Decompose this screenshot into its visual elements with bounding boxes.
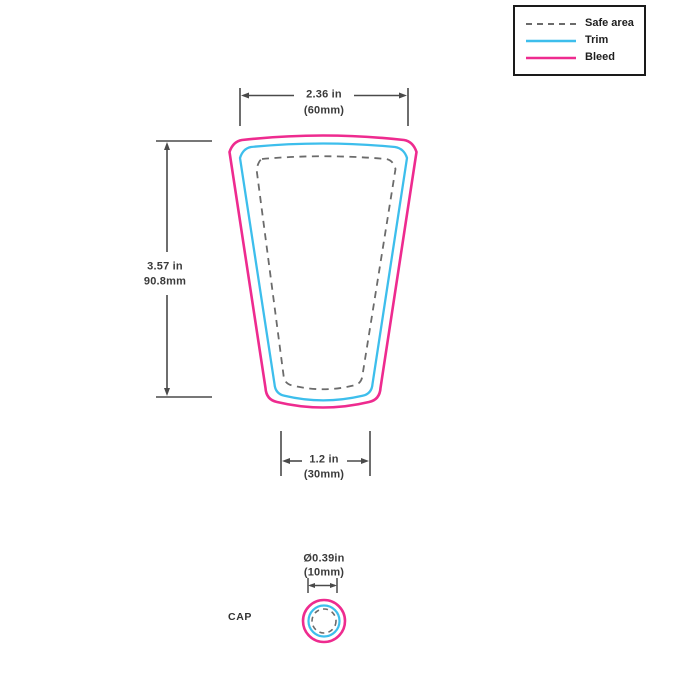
cap-diameter-dimension xyxy=(308,578,337,593)
legend-item-safe-area: Safe area xyxy=(525,18,644,30)
top-width-label-metric: (60mm) xyxy=(304,106,344,117)
cap-dim-arrow-right xyxy=(330,583,337,588)
height-label-inches: 3.57 in xyxy=(147,262,183,273)
legend-label-safe-area: Safe area xyxy=(585,18,634,29)
height-dim-arrow-down xyxy=(164,388,170,396)
trim-line-swatch xyxy=(525,38,577,44)
bottom-dim-arrow-left xyxy=(282,458,290,464)
cap-dim-arrow-left xyxy=(308,583,315,588)
height-dim-arrow-up xyxy=(164,142,170,150)
safe-area-line-swatch xyxy=(525,21,577,27)
legend-box: Safe area Trim Bleed xyxy=(513,5,646,76)
bottom-dim-arrow-right xyxy=(361,458,369,464)
cap-trim-circle xyxy=(309,606,340,637)
cap-diameter-label-metric: (10mm) xyxy=(304,568,344,579)
cap-diameter-label-inches: Ø0.39in xyxy=(303,554,344,565)
body-trim-outline xyxy=(240,144,407,401)
legend-label-trim: Trim xyxy=(585,35,608,46)
top-dim-arrow-left xyxy=(241,93,249,99)
legend-item-trim: Trim xyxy=(525,35,644,47)
legend-label-bleed: Bleed xyxy=(585,52,615,63)
top-width-label-inches: 2.36 in xyxy=(306,90,342,101)
cap-dieline xyxy=(303,600,345,642)
cap-label: CAP xyxy=(228,611,252,623)
cap-safe-area-circle xyxy=(312,609,336,633)
bleed-line-swatch xyxy=(525,55,577,61)
dieline-drawing xyxy=(0,0,700,700)
height-label-metric: 90.8mm xyxy=(144,277,186,288)
legend-item-bleed: Bleed xyxy=(525,52,644,64)
top-dim-arrow-right xyxy=(399,93,407,99)
body-safe-area-outline xyxy=(257,156,396,389)
bottom-width-label-metric: (30mm) xyxy=(304,470,344,481)
body-dieline xyxy=(230,136,417,408)
dieline-page: 2.36 in (60mm) 3.57 in 90.8mm 1.2 in (30… xyxy=(0,0,700,700)
bottom-width-label-inches: 1.2 in xyxy=(309,455,338,466)
